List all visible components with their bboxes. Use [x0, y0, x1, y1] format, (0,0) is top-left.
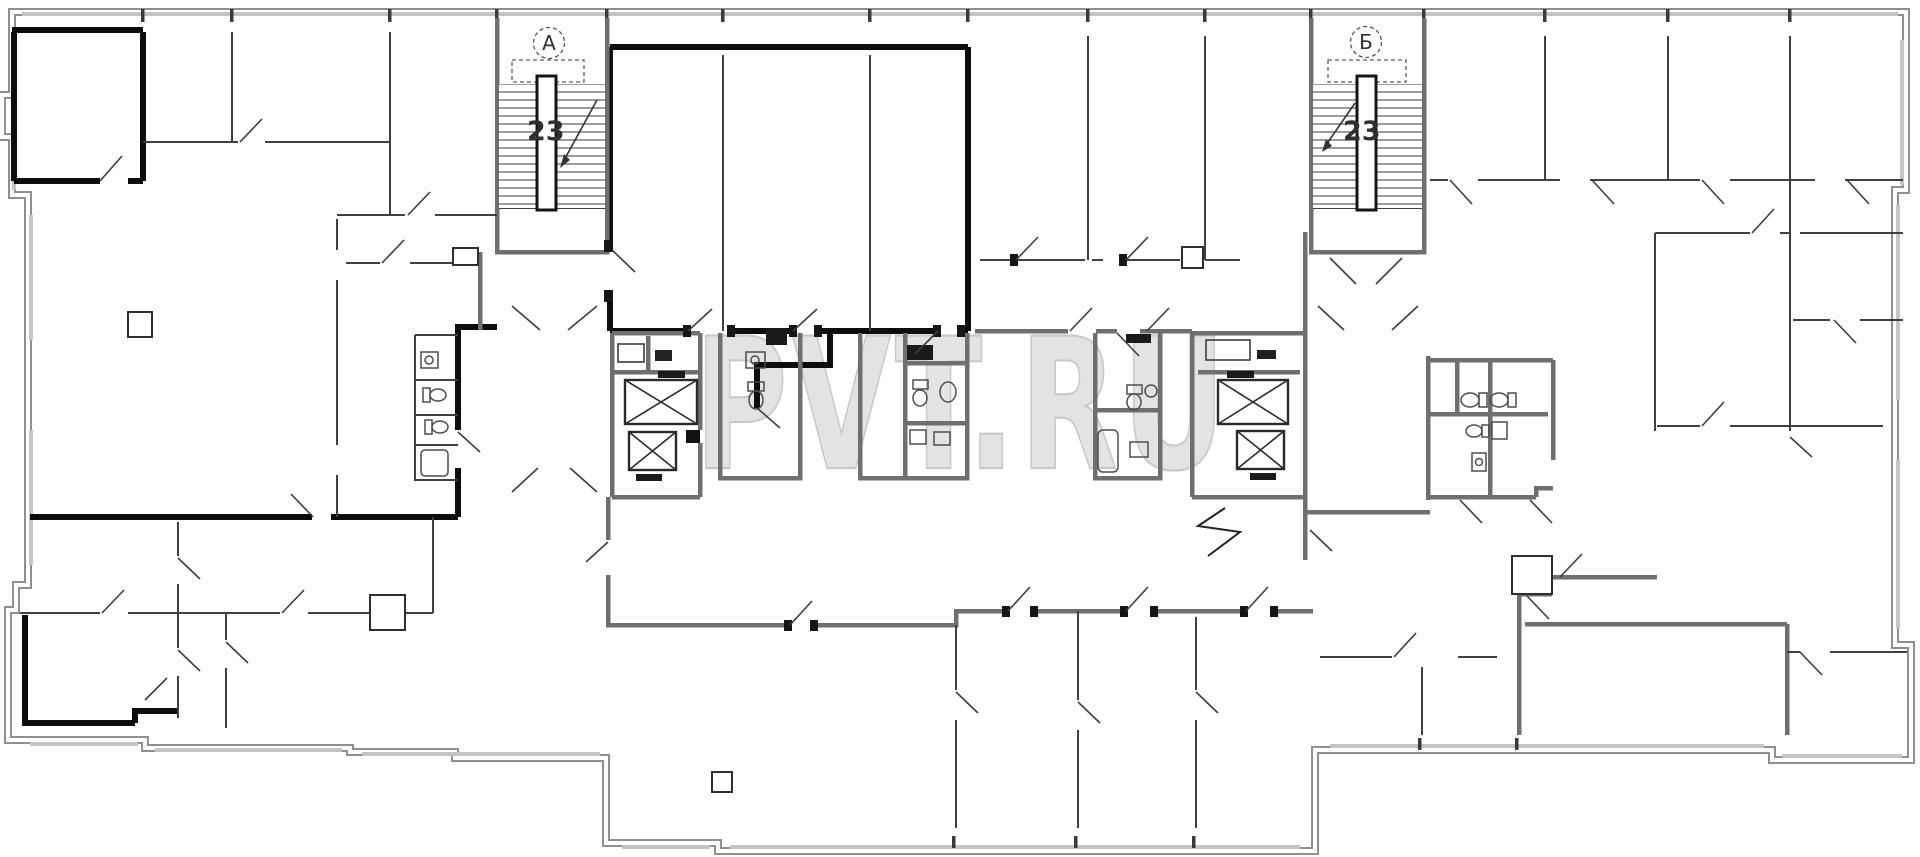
elevator-shaft-small-right	[1237, 431, 1284, 469]
column	[1182, 247, 1203, 268]
toilet-icon	[1466, 425, 1489, 437]
stairwell-a: 23 А	[499, 28, 605, 211]
stairwell-b-floor-number: 23	[1343, 116, 1381, 147]
elevator-x-icon	[625, 380, 697, 424]
floor-plan-page: PVT.RU	[0, 0, 1920, 857]
kitchen-counter-icon	[907, 345, 933, 360]
toilet-icon	[423, 388, 446, 402]
sink-icon	[1492, 422, 1507, 439]
elevator-x-icon	[1237, 431, 1284, 469]
toilet-icon	[1490, 393, 1516, 407]
stairwell-a-label: А	[542, 31, 556, 55]
kitchen-counter-icon	[1126, 334, 1151, 343]
toilet-icon	[425, 420, 448, 434]
stairwell-b-label: Б	[1359, 30, 1373, 54]
sink-icon	[421, 352, 438, 368]
toilet-icon	[1461, 393, 1487, 407]
sink-icon	[1472, 453, 1486, 471]
stairwell-a-floor-number: 23	[527, 116, 565, 147]
duct-shaft	[1512, 556, 1552, 594]
kitchen-counter-icon	[766, 328, 787, 345]
break-line-zigzag	[1198, 508, 1240, 556]
elevator-shaft-large-left	[625, 380, 697, 424]
elevator-shaft-small-left	[629, 432, 676, 470]
elevator-x-icon	[629, 432, 676, 470]
column	[712, 772, 732, 792]
floor-plan-canvas: PVT.RU	[0, 0, 1920, 857]
column	[128, 312, 152, 337]
bathtub-icon	[421, 450, 448, 476]
stairwell-b: 23 Б	[1313, 27, 1422, 211]
column	[453, 248, 478, 265]
column	[370, 595, 405, 630]
